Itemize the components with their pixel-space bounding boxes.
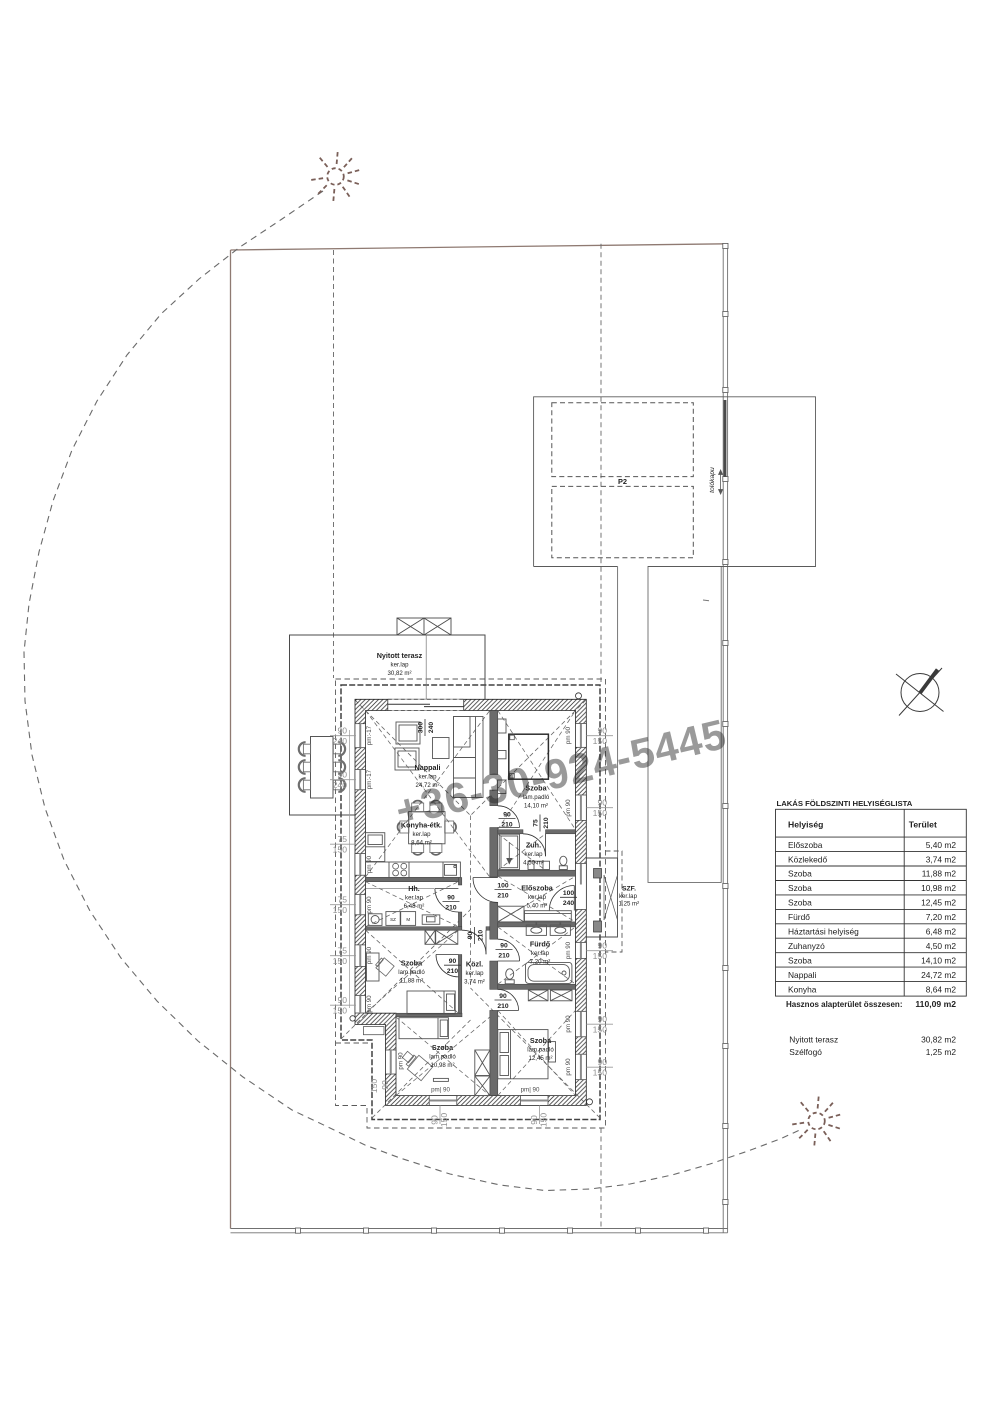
svg-text:6,48 m2: 6,48 m2 [926,927,957,937]
svg-text:90: 90 [597,1014,607,1024]
svg-text:Közlekedő: Közlekedő [788,854,827,864]
svg-text:ker.lap: ker.lap [405,895,424,902]
svg-text:240: 240 [333,780,348,790]
svg-text:210: 210 [497,1003,508,1010]
svg-text:pm 90: pm 90 [366,896,373,914]
svg-text:Zuhanyzó: Zuhanyzó [788,941,825,951]
svg-text:90: 90 [447,894,455,901]
svg-text:4,50 m²: 4,50 m² [523,860,544,867]
svg-text:Helyiség: Helyiség [788,820,823,830]
svg-text:Nappali: Nappali [415,763,441,772]
svg-text:ker.lap: ker.lap [619,893,638,900]
svg-text:Szoba: Szoba [401,959,423,968]
svg-text:90: 90 [337,770,347,780]
svg-text:pm| 90: pm| 90 [521,1087,540,1094]
svg-text:3,74 m2: 3,74 m2 [926,854,957,864]
svg-text:Szoba: Szoba [788,955,812,965]
svg-text:24,72 m2: 24,72 m2 [921,970,956,980]
svg-text:SZ: SZ [390,917,396,922]
svg-text:75: 75 [337,834,347,844]
svg-text:Nyitott terasz: Nyitott terasz [377,651,423,660]
svg-text:90: 90 [380,1080,390,1090]
svg-text:210: 210 [543,817,550,828]
svg-text:150: 150 [333,956,348,966]
svg-text:210: 210 [447,968,458,975]
svg-text:100: 100 [497,882,508,889]
svg-text:pm 90: pm 90 [366,946,373,964]
svg-text:90: 90 [499,993,507,1000]
svg-text:90: 90 [430,1115,440,1125]
svg-text:90: 90 [597,1057,607,1067]
svg-text:pm 90: pm 90 [366,855,373,873]
svg-text:8,64 m2: 8,64 m2 [926,984,957,994]
svg-text:90: 90 [503,811,511,818]
svg-text:Háztartási helyiség: Háztartási helyiség [788,927,859,937]
svg-text:pm:-17: pm:-17 [366,725,373,745]
svg-text:150: 150 [439,1113,449,1128]
svg-text:Közl.: Közl. [466,960,483,969]
svg-text:150: 150 [539,1113,549,1128]
svg-text:90: 90 [337,995,347,1005]
svg-text:150: 150 [593,951,608,961]
svg-text:75: 75 [337,895,347,905]
svg-text:75: 75 [533,819,540,827]
svg-text:12,45 m2: 12,45 m2 [921,898,956,908]
svg-text:90: 90 [597,726,607,736]
svg-text:7,20 m²: 7,20 m² [530,959,551,966]
svg-text:ker.lap: ker.lap [531,950,550,957]
svg-text:Hasznos alapterület összesen:: Hasznos alapterület összesen: [786,1000,902,1009]
svg-text:7,20 m2: 7,20 m2 [926,912,957,922]
svg-text:90: 90 [597,798,607,808]
svg-text:ker.lap: ker.lap [391,662,410,669]
svg-text:1,25 m2: 1,25 m2 [926,1047,957,1057]
svg-text:ker.lap: ker.lap [528,894,547,901]
svg-text:Terület: Terület [909,820,937,830]
svg-text:150: 150 [593,1025,608,1035]
svg-text:150: 150 [369,1079,379,1094]
svg-text:Konyha: Konyha [788,984,817,994]
svg-text:5,40 m²: 5,40 m² [527,903,548,910]
svg-text:ker.lap: ker.lap [525,851,544,858]
svg-text:Előszoba: Előszoba [521,884,554,893]
svg-text:10,98 m2: 10,98 m2 [921,883,956,893]
svg-text:6,48 m²: 6,48 m² [404,903,425,910]
svg-text:ker.lap: ker.lap [466,970,485,977]
svg-text:210: 210 [477,930,484,941]
svg-text:5,40 m2: 5,40 m2 [926,840,957,850]
svg-text:240: 240 [563,900,574,907]
svg-text:11,88 m²: 11,88 m² [400,978,424,985]
svg-text:210: 210 [445,904,456,911]
svg-text:Nappali: Nappali [788,970,817,980]
svg-text:90: 90 [597,941,607,951]
svg-text:Előszoba: Előszoba [788,840,823,850]
svg-text:90: 90 [449,958,457,965]
svg-text:lam.padló: lam.padló [398,969,425,976]
svg-text:ker.lap: ker.lap [413,831,432,838]
svg-text:LAKÁS FÖLDSZINTI HELYISÉGLISTA: LAKÁS FÖLDSZINTI HELYISÉGLISTA [777,799,913,808]
svg-text:Hh.: Hh. [408,884,420,893]
svg-text:150: 150 [333,845,348,855]
svg-text:pm 90: pm 90 [565,799,572,817]
svg-text:240: 240 [333,736,348,746]
svg-text:90: 90 [467,932,474,940]
svg-text:pm 90: pm 90 [565,1058,572,1076]
svg-text:3,74 m²: 3,74 m² [464,979,485,986]
svg-text:pm 90: pm 90 [565,726,572,744]
svg-text:Szoba: Szoba [788,898,812,908]
svg-text:Nyitott terasz: Nyitott terasz [789,1035,838,1045]
svg-text:150: 150 [333,1006,348,1016]
svg-text:10,98 m²: 10,98 m² [430,1062,454,1069]
svg-text:90: 90 [500,942,508,949]
svg-text:8,64 m²: 8,64 m² [411,840,432,847]
svg-text:210: 210 [501,821,512,828]
svg-text:100: 100 [563,890,574,897]
svg-text:pm 90: pm 90 [366,995,373,1013]
svg-text:lam.padló: lam.padló [429,1054,456,1061]
svg-text:300: 300 [418,722,425,733]
svg-text:tolókapu: tolókapu [709,467,716,493]
svg-text:SZF.: SZF. [622,886,636,893]
svg-text:240: 240 [428,722,435,733]
svg-text:110,09 m2: 110,09 m2 [915,999,956,1009]
svg-text:Szélfogó: Szélfogó [789,1047,822,1057]
svg-text:Szoba: Szoba [432,1043,454,1052]
svg-text:pm:-17: pm:-17 [366,769,373,789]
svg-text:90: 90 [337,726,347,736]
svg-text:pm| 90: pm| 90 [431,1087,450,1094]
svg-text:Fürdő: Fürdő [530,940,551,949]
svg-text:150: 150 [333,905,348,915]
svg-text:90: 90 [529,1115,539,1125]
svg-text:Szoba: Szoba [788,869,812,879]
svg-text:lam.padló: lam.padló [527,1047,554,1054]
svg-text:1,25 m²: 1,25 m² [619,901,640,908]
svg-text:pm 90: pm 90 [398,1052,405,1070]
svg-text:30,82 m²: 30,82 m² [387,670,411,677]
svg-text:150: 150 [593,808,608,818]
svg-text:P2: P2 [618,477,627,486]
svg-text:30,82 m2: 30,82 m2 [921,1035,956,1045]
svg-text:pm 90: pm 90 [565,941,572,959]
svg-text:Zuh.: Zuh. [526,841,541,850]
svg-text:12,45 m²: 12,45 m² [528,1055,552,1062]
svg-text:75: 75 [337,946,347,956]
svg-text:Szoba: Szoba [530,1036,552,1045]
svg-text:210: 210 [497,892,508,899]
svg-text:pm 90: pm 90 [565,1015,572,1033]
svg-text:210: 210 [498,952,509,959]
svg-text:Fürdő: Fürdő [788,912,810,922]
svg-text:150: 150 [593,1068,608,1078]
svg-text:14,10 m2: 14,10 m2 [921,955,956,965]
svg-text:11,88 m2: 11,88 m2 [922,869,957,879]
svg-text:Szoba: Szoba [788,883,812,893]
svg-text:M: M [406,917,410,922]
svg-text:4,50 m2: 4,50 m2 [926,941,957,951]
